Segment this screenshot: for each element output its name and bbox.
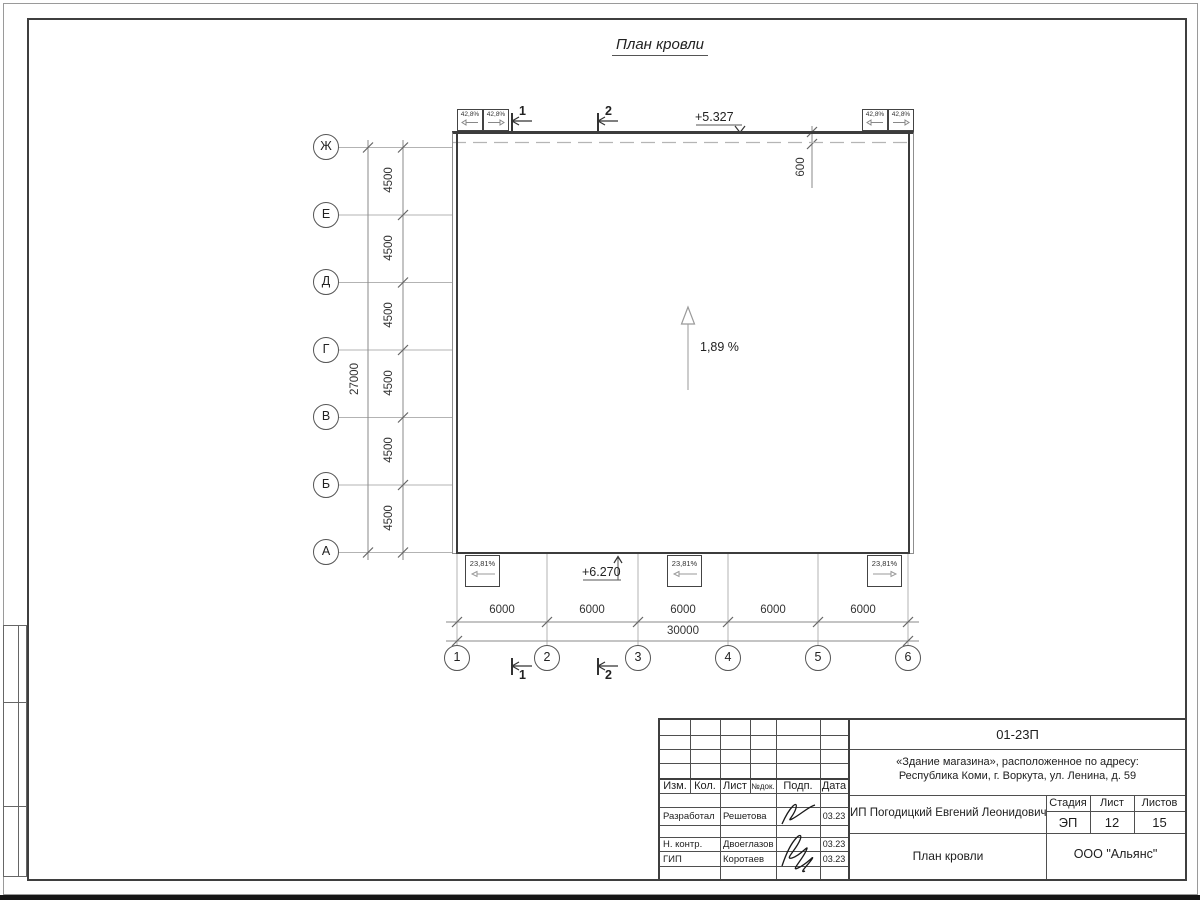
tb-col-izm: Изм. <box>660 780 690 792</box>
tb-name: Коротаев <box>723 854 775 865</box>
dim-30000: 30000 <box>653 625 713 637</box>
tb-sheet-title: План кровли <box>850 849 1046 863</box>
tb-col-ndok: №док. <box>750 782 776 791</box>
dim-6000: 6000 <box>743 604 803 616</box>
row-axis-bubble: Е <box>313 202 339 228</box>
tb-project-line1: «Здание магазина», расположенное по адре… <box>850 756 1185 768</box>
row-axis-bubble: Б <box>313 472 339 498</box>
roof-drain: 23,81% <box>465 555 500 587</box>
col-axis-bubble: 6 <box>895 645 921 671</box>
dim-6000: 6000 <box>472 604 532 616</box>
roof-vent: 42,8% <box>888 109 914 131</box>
arrow-left-icon <box>470 570 496 578</box>
dim-4500: 4500 <box>383 420 395 480</box>
section-mark-label: 2 <box>605 104 612 118</box>
roof-vent: 42,8% <box>862 109 888 131</box>
section-mark-label: 1 <box>519 104 526 118</box>
arrow-right-icon <box>487 119 505 126</box>
tb-sheets-value: 15 <box>1134 815 1185 830</box>
roof-vent: 42,8% <box>457 109 483 131</box>
dim-4500: 4500 <box>383 353 395 413</box>
col-axis-bubble: 5 <box>805 645 831 671</box>
tb-role: Разработал <box>663 811 719 822</box>
dim-4500: 4500 <box>383 218 395 278</box>
tb-col-kol: Кол. <box>690 780 720 792</box>
tb-col-podp: Подп. <box>776 780 820 792</box>
tb-role: Н. контр. <box>663 839 719 850</box>
arrow-left-icon <box>461 119 479 126</box>
col-axis-bubble: 2 <box>534 645 560 671</box>
section-mark-label: 1 <box>519 668 526 682</box>
elevation-top: +5.327 <box>695 110 734 124</box>
arrow-left-icon <box>672 570 698 578</box>
elevation-bottom: +6.270 <box>582 565 621 579</box>
tb-name: Решетова <box>723 811 775 822</box>
row-axis-bubble: В <box>313 404 339 430</box>
row-axis-bubble: Г <box>313 337 339 363</box>
section-mark-label: 2 <box>605 668 612 682</box>
drawing-sheet: План кровли <box>0 0 1200 900</box>
row-axis-bubble: Ж <box>313 134 339 160</box>
tb-project-line2: Республика Коми, г. Воркута, ул. Ленина,… <box>850 770 1185 782</box>
row-axis-bubble: А <box>313 539 339 565</box>
roof-drain: 23,81% <box>667 555 702 587</box>
dim-600: 600 <box>795 147 807 187</box>
signature <box>778 798 820 828</box>
dim-6000: 6000 <box>653 604 713 616</box>
col-axis-bubble: 4 <box>715 645 741 671</box>
tb-doc-number: 01-23П <box>850 727 1185 742</box>
tb-sheets-label: Листов <box>1134 797 1185 809</box>
tb-name: Двоеглазов <box>723 839 775 850</box>
tb-date: 03.23 <box>820 854 848 864</box>
tb-company: ООО "Альянс" <box>1046 847 1185 861</box>
vent-slope-label: 42,8% <box>863 111 887 119</box>
tb-sheet-label: Лист <box>1090 797 1134 809</box>
arrow-left-icon <box>866 119 884 126</box>
roof-drain: 23,81% <box>867 555 902 587</box>
signature <box>774 826 824 878</box>
vent-slope-label: 42,8% <box>889 111 913 119</box>
dim-6000: 6000 <box>833 604 893 616</box>
dim-6000: 6000 <box>562 604 622 616</box>
tb-stage-value: ЭП <box>1046 815 1090 830</box>
roof-outline-inner <box>456 134 910 554</box>
slope-label: 1,89 % <box>700 340 739 354</box>
drain-slope-label: 23,81% <box>868 559 901 569</box>
tb-date: 03.23 <box>820 839 848 849</box>
arrow-right-icon <box>872 570 898 578</box>
dim-4500: 4500 <box>383 150 395 210</box>
tb-sheet-value: 12 <box>1090 815 1134 830</box>
vent-slope-label: 42,8% <box>458 111 482 119</box>
vent-slope-label: 42,8% <box>484 111 508 119</box>
tb-role: ГИП <box>663 854 719 865</box>
tb-col-data: Дата <box>820 780 848 792</box>
tb-date: 03.23 <box>820 811 848 821</box>
row-axis-bubble: Д <box>313 269 339 295</box>
tb-stage-label: Стадия <box>1046 797 1090 809</box>
roof-vent: 42,8% <box>483 109 509 131</box>
col-axis-bubble: 1 <box>444 645 470 671</box>
dim-4500: 4500 <box>383 285 395 345</box>
arrow-right-icon <box>892 119 910 126</box>
drain-slope-label: 23,81% <box>668 559 701 569</box>
dim-27000: 27000 <box>349 339 361 419</box>
tb-client: ИП Погодицкий Евгений Леонидович <box>850 807 1046 819</box>
drain-slope-label: 23,81% <box>466 559 499 569</box>
col-axis-bubble: 3 <box>625 645 651 671</box>
dim-4500: 4500 <box>383 488 395 548</box>
title-block: Изм. Кол. Лист №док. Подп. Дата Разработ… <box>658 718 1187 881</box>
tb-col-list: Лист <box>720 780 750 792</box>
